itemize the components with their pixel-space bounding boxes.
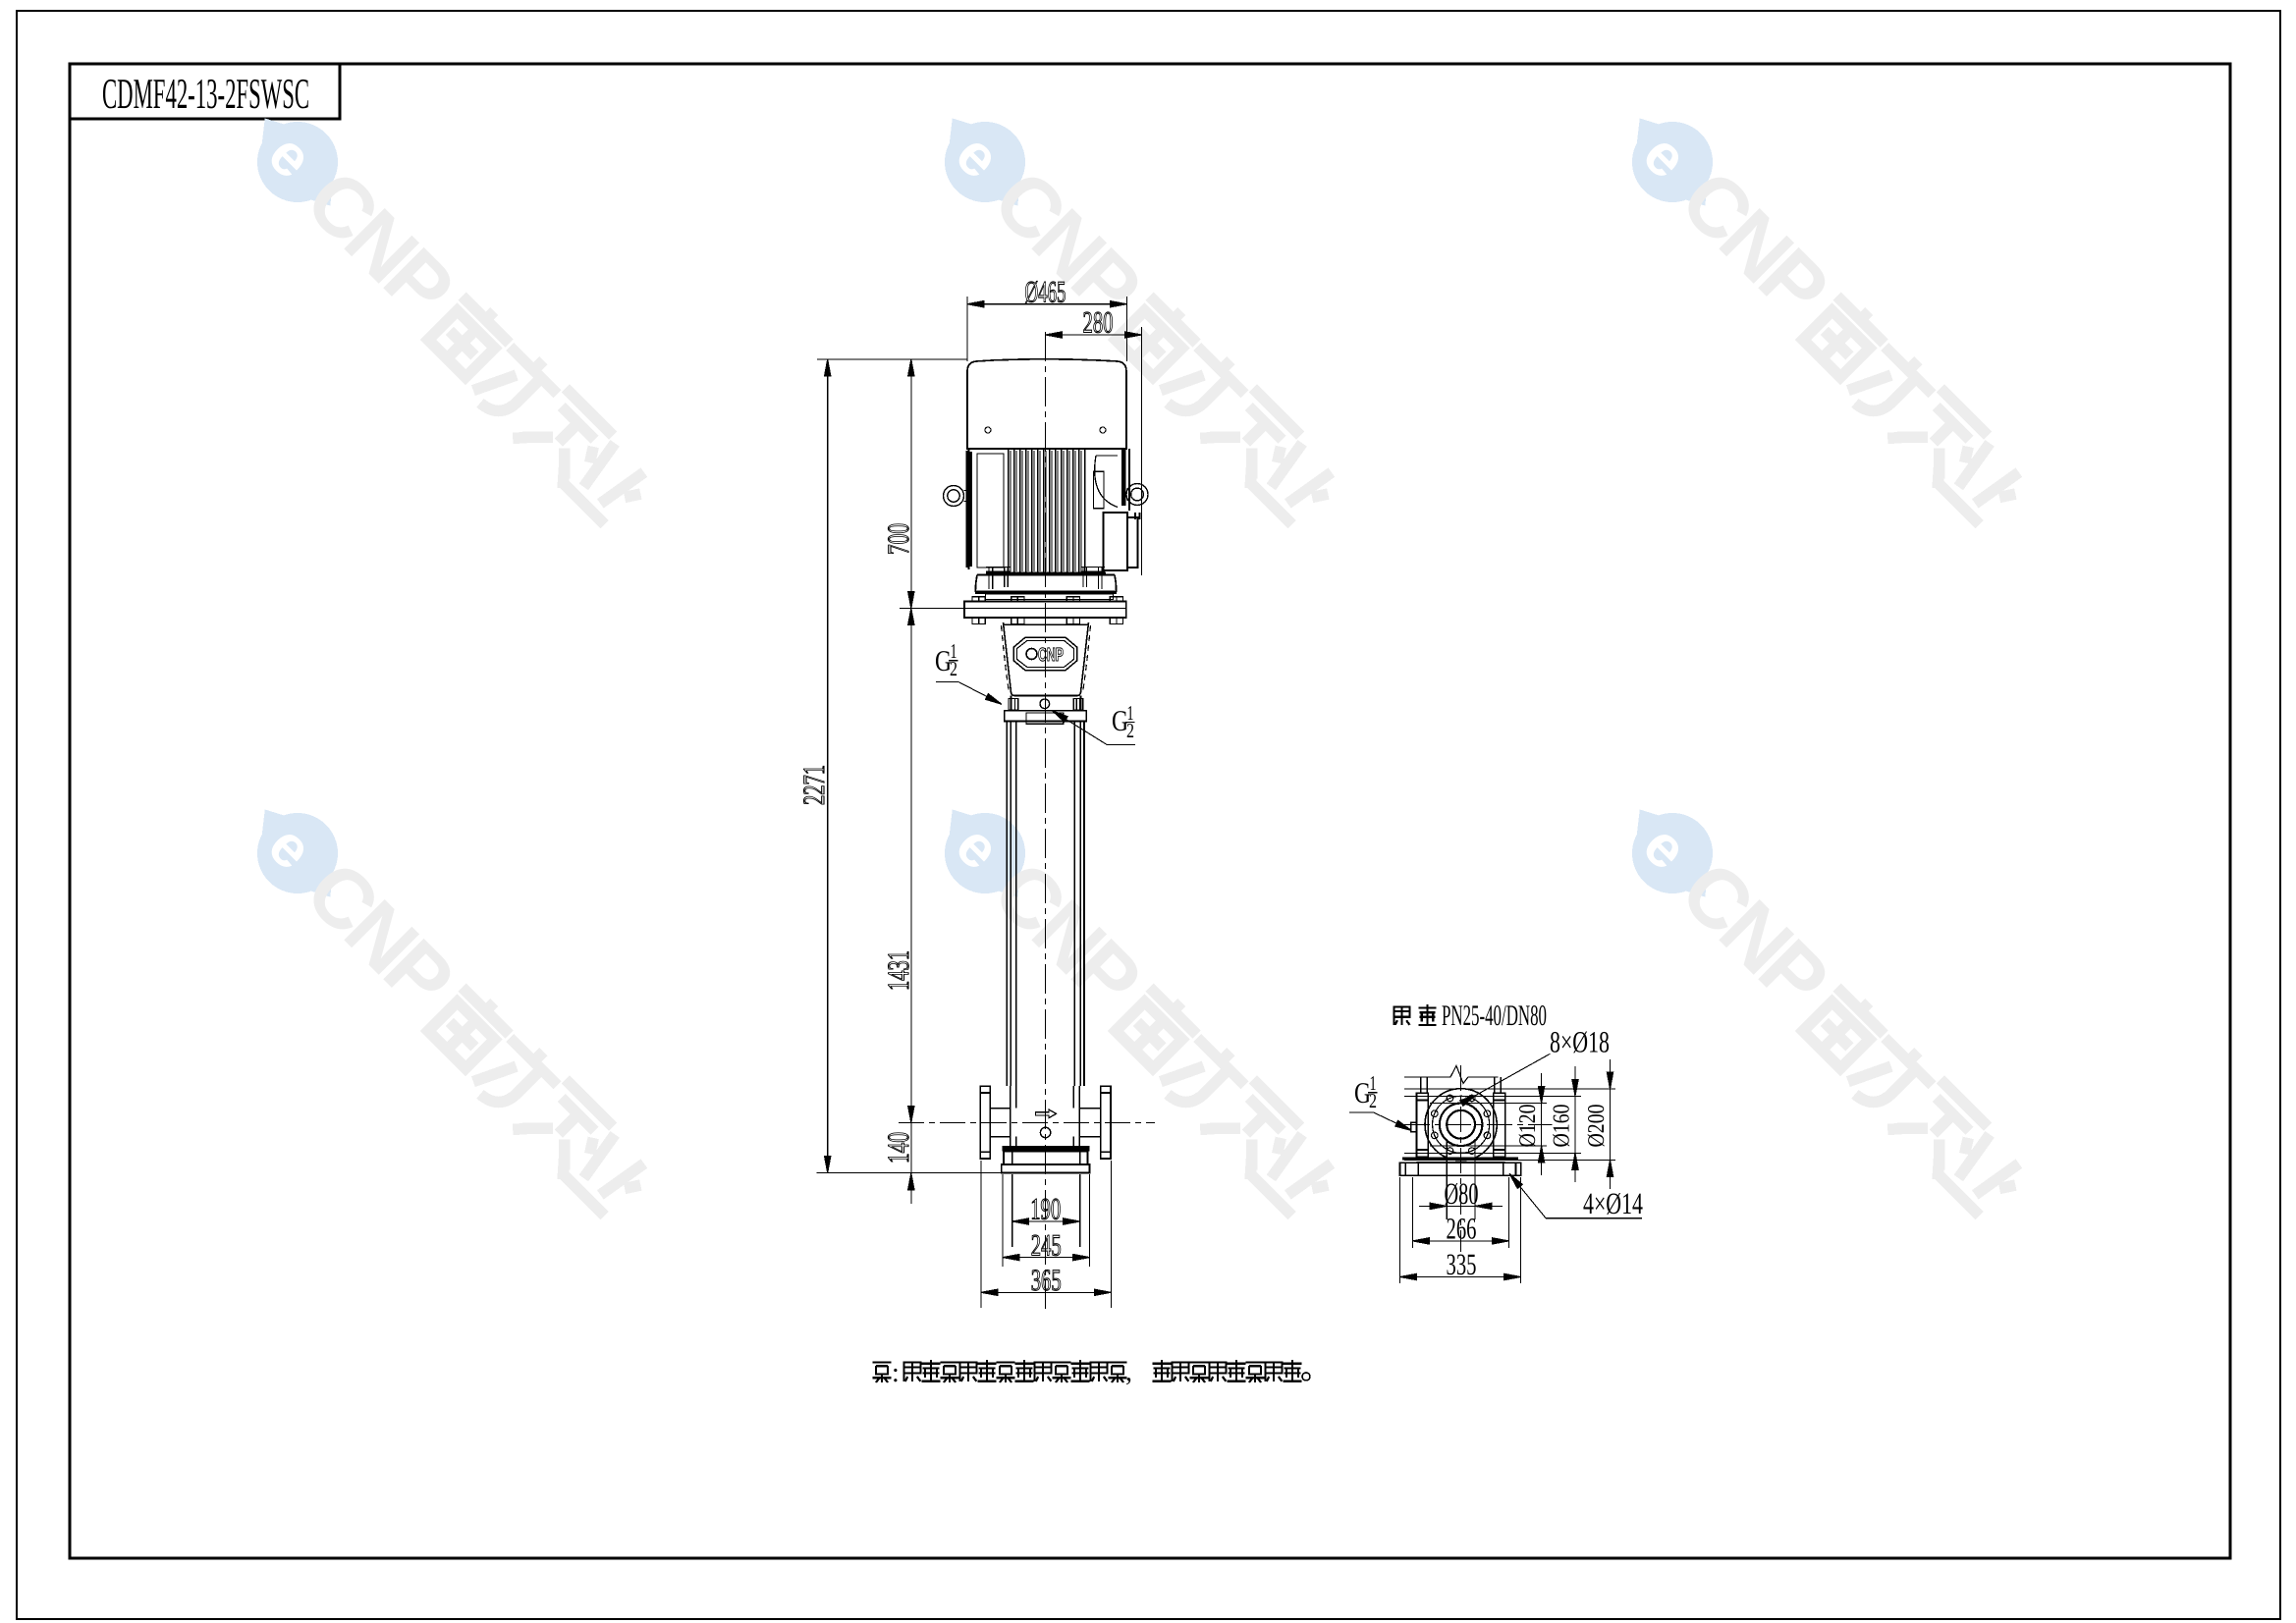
svg-text:245: 245 [1031, 1227, 1062, 1262]
svg-text:266: 266 [1447, 1212, 1477, 1246]
svg-text:Ø80: Ø80 [1445, 1176, 1479, 1211]
svg-text:CDMF42-13-2FSWSC: CDMF42-13-2FSWSC [102, 70, 309, 118]
svg-text:700: 700 [881, 523, 915, 555]
svg-text:2271: 2271 [796, 765, 831, 805]
svg-text:140: 140 [881, 1132, 915, 1163]
svg-text:Ø120: Ø120 [1515, 1105, 1541, 1148]
svg-text:PN25-40/DN80: PN25-40/DN80 [1442, 1000, 1547, 1032]
svg-text:335: 335 [1447, 1247, 1477, 1281]
svg-text:4×Ø14: 4×Ø14 [1583, 1186, 1643, 1220]
svg-text:Ø200: Ø200 [1584, 1105, 1610, 1148]
svg-text:8×Ø18: 8×Ø18 [1550, 1025, 1610, 1059]
svg-text:190: 190 [1030, 1192, 1061, 1226]
svg-text::: : [892, 1358, 900, 1388]
svg-text:Ø160: Ø160 [1550, 1105, 1575, 1148]
svg-text:1431: 1431 [881, 950, 915, 991]
svg-text:Ø465: Ø465 [1025, 275, 1066, 309]
svg-text:CNP: CNP [1038, 645, 1064, 666]
svg-text:280: 280 [1083, 305, 1114, 340]
svg-text:,: , [1125, 1357, 1132, 1387]
svg-text:365: 365 [1031, 1263, 1062, 1297]
